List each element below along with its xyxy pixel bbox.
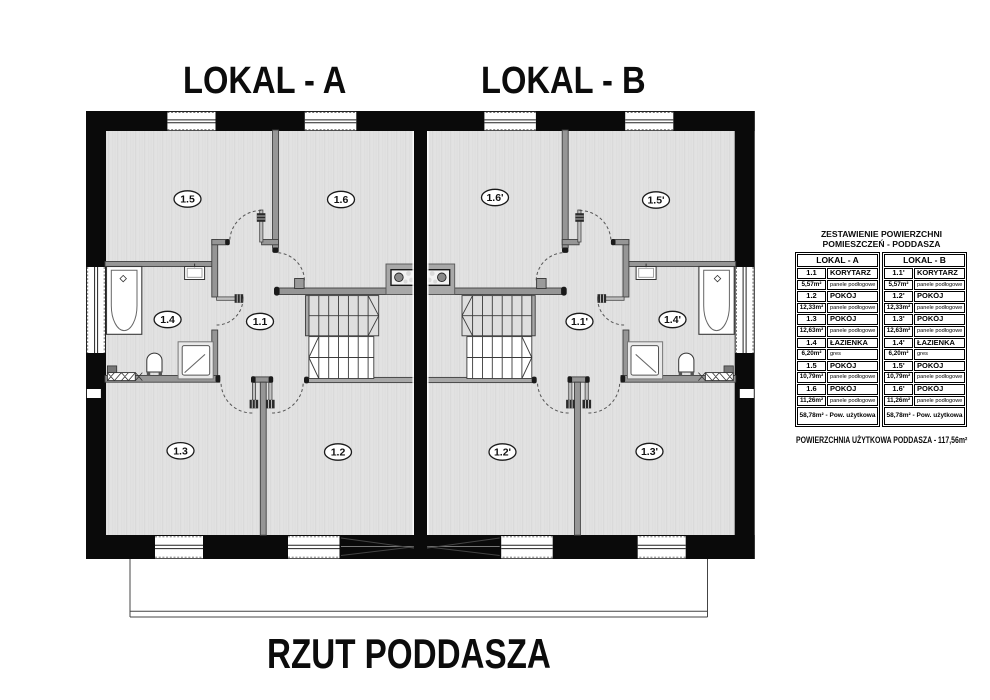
svg-text:1.1': 1.1' xyxy=(571,316,588,328)
svg-text:1.4: 1.4 xyxy=(160,314,175,326)
svg-text:1.2': 1.2' xyxy=(494,447,511,459)
svg-text:1.4': 1.4' xyxy=(664,314,681,326)
svg-text:1.6': 1.6' xyxy=(486,192,503,204)
svg-text:1.3: 1.3 xyxy=(173,446,188,458)
svg-text:1.1: 1.1 xyxy=(253,316,268,328)
svg-text:1.5: 1.5 xyxy=(180,194,195,206)
svg-text:1.6: 1.6 xyxy=(334,194,349,206)
svg-text:1.3': 1.3' xyxy=(641,446,658,458)
svg-text:1.5': 1.5' xyxy=(647,195,664,207)
svg-text:1.2: 1.2 xyxy=(331,447,346,459)
